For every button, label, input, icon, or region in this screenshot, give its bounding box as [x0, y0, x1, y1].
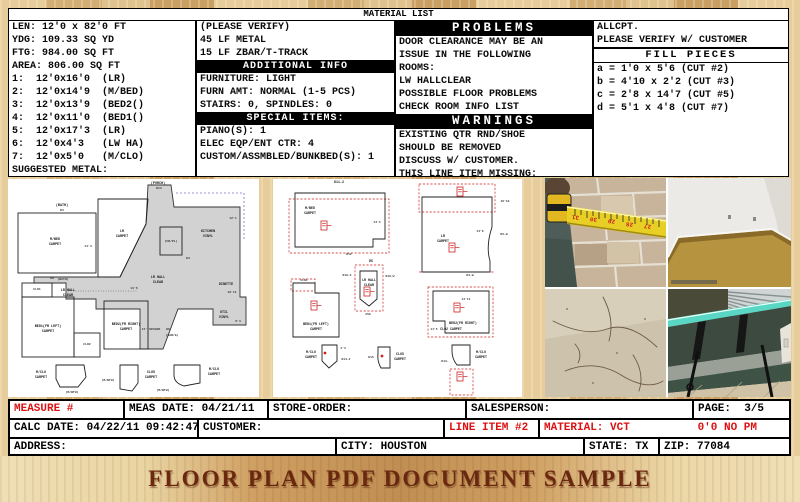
banner-title: FLOOR PLAN PDF DOCUMENT SAMPLE	[148, 466, 651, 492]
problem-line: DOOR CLEARANCE MAY BE AN	[396, 36, 592, 49]
svg-text:(M/BTH): (M/BTH)	[157, 388, 170, 392]
dimension-line: FTG: 984.00 SQ FT	[9, 47, 195, 60]
job-info-form: MEASURE # MEAS DATE: 04/21/11 STORE-ORDE…	[8, 399, 791, 456]
svg-text:29: 29	[607, 217, 615, 225]
photo-empty-carpet-room	[668, 178, 791, 287]
additional-info-line: FURN AMT: NORMAL (1-5 PCS)	[197, 86, 394, 99]
cut-lr	[419, 184, 495, 272]
svg-text:D4: D4	[186, 256, 190, 260]
cut-mclo-left	[322, 345, 337, 368]
page-number-field: PAGE: 3/5	[694, 401, 789, 418]
svg-text:CARPET: CARPET	[394, 357, 406, 361]
svg-text:CARPET: CARPET	[304, 211, 316, 215]
dimension-line: 6: 12'0x4'3 (LW HA)	[9, 138, 195, 151]
svg-text:CLO2 CARPET: CLO2 CARPET	[440, 327, 462, 331]
svg-text:D9: D9	[50, 276, 54, 280]
form-row-3: ADDRESS: CITY: HOUSTON STATE: TX ZIP: 77…	[10, 439, 789, 454]
svg-text:(BATH): (BATH)	[57, 277, 68, 281]
svg-text:5'4: 5'4	[235, 319, 241, 323]
svg-text:250: 250	[365, 313, 371, 316]
svg-text:M/BED: M/BED	[305, 206, 315, 210]
svg-text:27: 27	[643, 222, 651, 230]
fill-pieces-column: ALLCPT.PLEASE VERIFY W/ CUSTOMER FILL PI…	[594, 21, 788, 177]
svg-text:DINETTE: DINETTE	[219, 283, 233, 287]
svg-text:12'1: 12'1	[229, 216, 237, 220]
svg-text:CLEAR: CLEAR	[63, 294, 74, 298]
svg-text:M/CLO: M/CLO	[209, 367, 219, 372]
svg-text:LR: LR	[441, 234, 445, 238]
svg-text:D13-: D13-	[441, 360, 448, 363]
svg-text:KITCHEN: KITCHEN	[201, 230, 215, 234]
dimension-line: 4: 12'0x11'0 (BED1()	[9, 112, 195, 125]
svg-text:CLOS: CLOS	[396, 352, 404, 356]
fill-piece-line: d = 5'1 x 4'8 (CUT #7)	[594, 102, 788, 115]
dimension-line: 5: 12'0x17'3 (LR)	[9, 125, 195, 138]
svg-text:CARPET: CARPET	[35, 376, 47, 380]
warning-line: DISCUSS W/ CUSTOMER.	[396, 155, 592, 168]
svg-text:M/CLO: M/CLO	[306, 350, 316, 354]
dimension-line: 2: 12'0x14'9 (M/BED)	[9, 86, 195, 99]
address-field: ADDRESS:	[10, 439, 337, 454]
svg-text:M/CLO: M/CLO	[476, 350, 486, 354]
warnings-header: WARNINGS	[396, 114, 592, 129]
problems-lines: DOOR CLEARANCE MAY BE ANISSUE IN THE FOL…	[396, 36, 592, 114]
svg-text:D4-W: D4-W	[466, 274, 473, 277]
special-items-header: SPECIAL ITEMS:	[197, 112, 394, 125]
special-item-line: CUSTOM/ASSMBLED/BUNKBED(S): 1	[197, 151, 394, 164]
svg-text:CARPET: CARPET	[145, 376, 157, 380]
problems-header: PROBLEMS	[396, 21, 592, 36]
meas-date-field: MEAS DATE: 04/21/11	[125, 401, 269, 418]
site-photos-grid: 31 30 29 28 27	[545, 178, 791, 397]
warning-line: EXISTING QTR RND/SHOE	[396, 129, 592, 142]
dimensions-column: LEN: 12'0 x 82'0 FTYDG: 109.33 SQ YDFTG:…	[9, 21, 197, 177]
svg-text:30: 30	[589, 215, 597, 223]
cut-diagrams-panel: D11-2 M/BED CARPET D12 14'4 LR CARPET 16…	[273, 179, 522, 397]
warning-line: SHOULD BE REMOVED	[396, 142, 592, 155]
svg-text:D11-2: D11-2	[334, 180, 344, 184]
photo-glass-table-window	[668, 289, 791, 397]
warnings-lines: EXISTING QTR RND/SHOESHOULD BE REMOVEDDI…	[396, 129, 592, 177]
svg-text:D14-2: D14-2	[341, 358, 350, 361]
form-row-1: MEASURE # MEAS DATE: 04/21/11 STORE-ORDE…	[10, 401, 789, 420]
store-order-field: STORE-ORDER:	[269, 401, 467, 418]
svg-text:D16-W: D16-W	[385, 275, 394, 278]
additional-info-lines: FURNITURE: LIGHTFURN AMT: NORMAL (1-5 PC…	[197, 73, 394, 112]
svg-text:CLO1: CLO1	[33, 287, 41, 291]
svg-text:CARPET: CARPET	[305, 355, 317, 359]
dimension-line: 3: 12'0x13'9 (BED2()	[9, 99, 195, 112]
svg-text:(FR/PL): (FR/PL)	[165, 239, 178, 243]
material-line: (PLEASE VERIFY)	[197, 21, 394, 34]
closet-mclo-right	[174, 365, 200, 386]
fill-piece-note-line: PLEASE VERIFY W/ CUSTOMER	[594, 34, 788, 47]
salesperson-field: SALESPERSON:	[467, 401, 694, 418]
material-extra: 0'0 NO PM	[698, 421, 785, 437]
cut-mclo-right	[450, 345, 473, 395]
cut-clos	[378, 347, 390, 368]
fill-piece-line: c = 2'8 x 14'7 (CUT #5)	[594, 89, 788, 102]
material-value: MATERIAL: VCT	[544, 421, 630, 437]
svg-text:13'5: 13'5	[130, 286, 138, 290]
dimension-line: 1: 12'0x16'0 (LR)	[9, 73, 195, 86]
svg-text:D15: D15	[368, 356, 374, 359]
svg-text:10'11: 10'11	[227, 290, 236, 294]
svg-text:LR HALL: LR HALL	[151, 276, 165, 280]
additional-info-line: STAIRS: 0, SPINDLES: 0	[197, 99, 394, 112]
special-item-line: PIANO(S): 1	[197, 125, 394, 138]
svg-text:CLEAR: CLEAR	[153, 281, 164, 285]
svg-text:CARPET: CARPET	[49, 243, 61, 247]
materials-top-lines: (PLEASE VERIFY)45 LF METAL15 LF ZBAR/T-T…	[197, 21, 394, 60]
svg-text:D12: D12	[346, 253, 352, 256]
problems-column: PROBLEMS DOOR CLEARANCE MAY BE ANISSUE I…	[396, 21, 594, 177]
svg-text:D13: D13	[156, 186, 162, 190]
additional-info-line: FURNITURE: LIGHT	[197, 73, 394, 86]
svg-text:CARPET: CARPET	[208, 373, 220, 377]
material-list-columns: LEN: 12'0 x 82'0 FTYDG: 109.33 SQ YDFTG:…	[9, 21, 788, 177]
material-field: MATERIAL: VCT 0'0 NO PM	[540, 420, 789, 437]
svg-text:D6: D6	[166, 327, 170, 331]
svg-text:CARPET: CARPET	[120, 328, 132, 332]
svg-text:CLOS: CLOS	[147, 371, 155, 375]
cut-diagrams-drawing: D11-2 M/BED CARPET D12 14'4 LR CARPET 16…	[273, 179, 522, 397]
material-line: 45 LF METAL	[197, 34, 394, 47]
form-row-2: CALC DATE: 04/22/11 09:42:47 CUSTOMER: L…	[10, 420, 789, 439]
material-line: 15 LF ZBAR/T-TRACK	[197, 47, 394, 60]
svg-text:4'4: 4'4	[340, 346, 346, 350]
dimension-line: 7: 12'0x5'0 (M/CLO)	[9, 151, 195, 164]
state-field: STATE: TX	[585, 439, 660, 454]
problem-line: ROOMS:	[396, 62, 592, 75]
svg-text:BED1(FR LEFT): BED1(FR LEFT)	[35, 324, 61, 329]
problem-line: LW HALLCLEAR	[396, 75, 592, 88]
svg-text:D5: D5	[369, 259, 373, 263]
material-list-title: MATERIAL LIST	[9, 9, 788, 21]
svg-text:CLO2: CLO2	[83, 342, 91, 346]
svg-text:16'10: 16'10	[500, 199, 509, 203]
svg-text:BED2(FR RIGHT): BED2(FR RIGHT)	[449, 321, 477, 325]
additional-info-header: ADDITIONAL INFO	[197, 60, 394, 73]
svg-text:14'11: 14'11	[461, 297, 470, 301]
svg-text:CARPET: CARPET	[310, 327, 322, 331]
svg-text:(GAR/G): (GAR/G)	[166, 333, 179, 337]
line-item-field: LINE ITEM #2	[445, 420, 540, 437]
svg-text:CLEAR: CLEAR	[364, 283, 374, 287]
svg-text:12' SPACER: 12' SPACER	[142, 327, 161, 331]
zip-field: ZIP: 77084	[660, 439, 789, 454]
fill-piece-note-line: ALLCPT.	[594, 21, 788, 34]
photo-tape-measure-brick-wall: 31 30 29 28 27	[545, 178, 666, 287]
customer-field: CUSTOMER:	[199, 420, 445, 437]
closet-clos-center	[120, 365, 138, 391]
svg-text:D10-2: D10-2	[342, 274, 351, 277]
svg-text:14'4: 14'4	[84, 244, 92, 248]
fill-pieces-top-lines: ALLCPT.PLEASE VERIFY W/ CUSTOMER	[594, 21, 788, 47]
fill-piece-line: b = 4'10 x 2'2 (CUT #3)	[594, 76, 788, 89]
svg-text:D3: D3	[60, 208, 64, 212]
dimension-line: LEN: 12'0 x 82'0 FT	[9, 21, 195, 34]
svg-text:LR: LR	[120, 230, 125, 234]
svg-text:UTIL: UTIL	[220, 311, 228, 315]
cut-diagram-labels: D11-2 M/BED CARPET D12 14'4 LR CARPET 16…	[300, 180, 509, 363]
city-field: CITY: HOUSTON	[337, 439, 585, 454]
svg-text:28: 28	[625, 220, 633, 228]
document-banner: FLOOR PLAN PDF DOCUMENT SAMPLE	[0, 456, 800, 502]
svg-text:14'4: 14'4	[373, 220, 380, 224]
problem-line: ISSUE IN THE FOLLOWING	[396, 49, 592, 62]
svg-text:CARPET: CARPET	[437, 239, 449, 243]
calc-date-field: CALC DATE: 04/22/11 09:42:47	[10, 420, 199, 437]
svg-text:M/BED: M/BED	[50, 237, 60, 242]
svg-text:CARPET: CARPET	[42, 330, 54, 334]
svg-text:31: 31	[571, 213, 579, 221]
svg-text:11'5: 11'5	[430, 327, 437, 331]
cut-lr-hall	[355, 265, 383, 311]
floor-plan-overview-panel: (PORCH) D13 (BATH) D3 M/BED CARPET LR CA…	[8, 179, 259, 397]
fill-piece-line: a = 1'0 x 5'6 (CUT #2)	[594, 63, 788, 76]
svg-text:VINYL: VINYL	[203, 235, 213, 239]
svg-text:BED2(FR RIGHT): BED2(FR RIGHT)	[112, 322, 141, 327]
material-list-table: MATERIAL LIST LEN: 12'0 x 82'0 FTYDG: 10…	[8, 8, 789, 177]
pdf-document-page: MATERIAL LIST LEN: 12'0 x 82'0 FTYDG: 10…	[0, 0, 800, 502]
svg-text:LR HALL: LR HALL	[362, 278, 376, 282]
fill-pieces-header: FILL PIECES	[594, 47, 788, 63]
svg-text:CLO1: CLO1	[300, 279, 307, 282]
measure-number-field: MEASURE #	[10, 401, 125, 418]
dimension-line: YDG: 109.33 SQ YD	[9, 34, 195, 47]
closet-mclo-left	[56, 365, 86, 387]
svg-text:(M/BTH): (M/BTH)	[102, 378, 115, 382]
dimension-line: AREA: 806.00 SQ FT	[9, 60, 195, 73]
problem-line: CHECK ROOM INFO LIST	[396, 101, 592, 114]
photo-cracked-vinyl-floor	[545, 289, 666, 397]
svg-text:D5-W: D5-W	[500, 233, 507, 236]
svg-text:BED1(FR LEFT): BED1(FR LEFT)	[303, 322, 329, 326]
svg-text:(M/BTH): (M/BTH)	[66, 390, 79, 394]
fill-pieces-lines: a = 1'0 x 5'6 (CUT #2)b = 4'10 x 2'2 (CU…	[594, 63, 788, 115]
svg-text:CARPET: CARPET	[116, 235, 128, 239]
svg-text:VINYL: VINYL	[219, 316, 229, 320]
svg-text:14'6: 14'6	[476, 229, 483, 233]
warning-line: THIS LINE ITEM MISSING:	[396, 168, 592, 177]
special-item-line: ELEC EQP/ENT CTR: 4	[197, 138, 394, 151]
problem-line: POSSIBLE FLOOR PROBLEMS	[396, 88, 592, 101]
dimension-line: SUGGESTED METAL:	[9, 164, 195, 177]
materials-column: (PLEASE VERIFY)45 LF METAL15 LF ZBAR/T-T…	[197, 21, 396, 177]
svg-text:CARPET: CARPET	[475, 355, 487, 359]
floor-plan-drawing: (PORCH) D13 (BATH) D3 M/BED CARPET LR CA…	[8, 179, 259, 397]
svg-text:LR HALL: LR HALL	[61, 289, 75, 293]
special-items-lines: PIANO(S): 1ELEC EQP/ENT CTR: 4CUSTOM/ASS…	[197, 125, 394, 164]
svg-text:M/CLO: M/CLO	[36, 370, 46, 375]
